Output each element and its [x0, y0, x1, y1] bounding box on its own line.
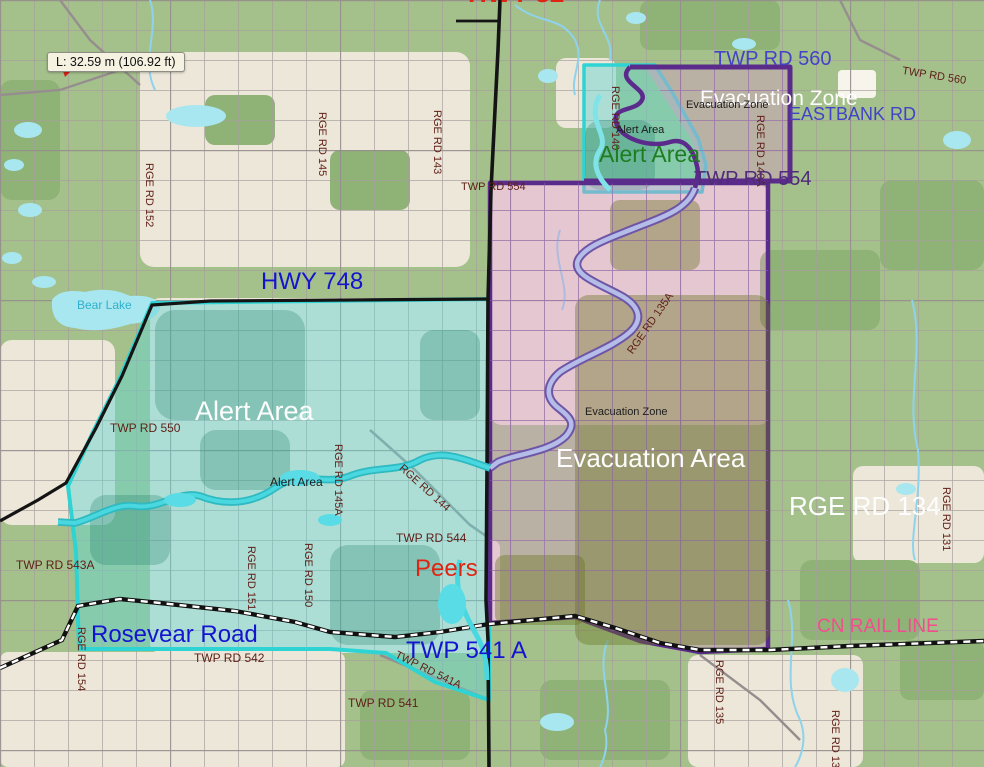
basemap	[0, 0, 984, 767]
measurement-tooltip: L: 32.59 m (106.92 ft)	[47, 52, 185, 72]
map-canvas[interactable]: HWY 32TWP RD 560TWP RD 560Evacuation Zon…	[0, 0, 984, 767]
